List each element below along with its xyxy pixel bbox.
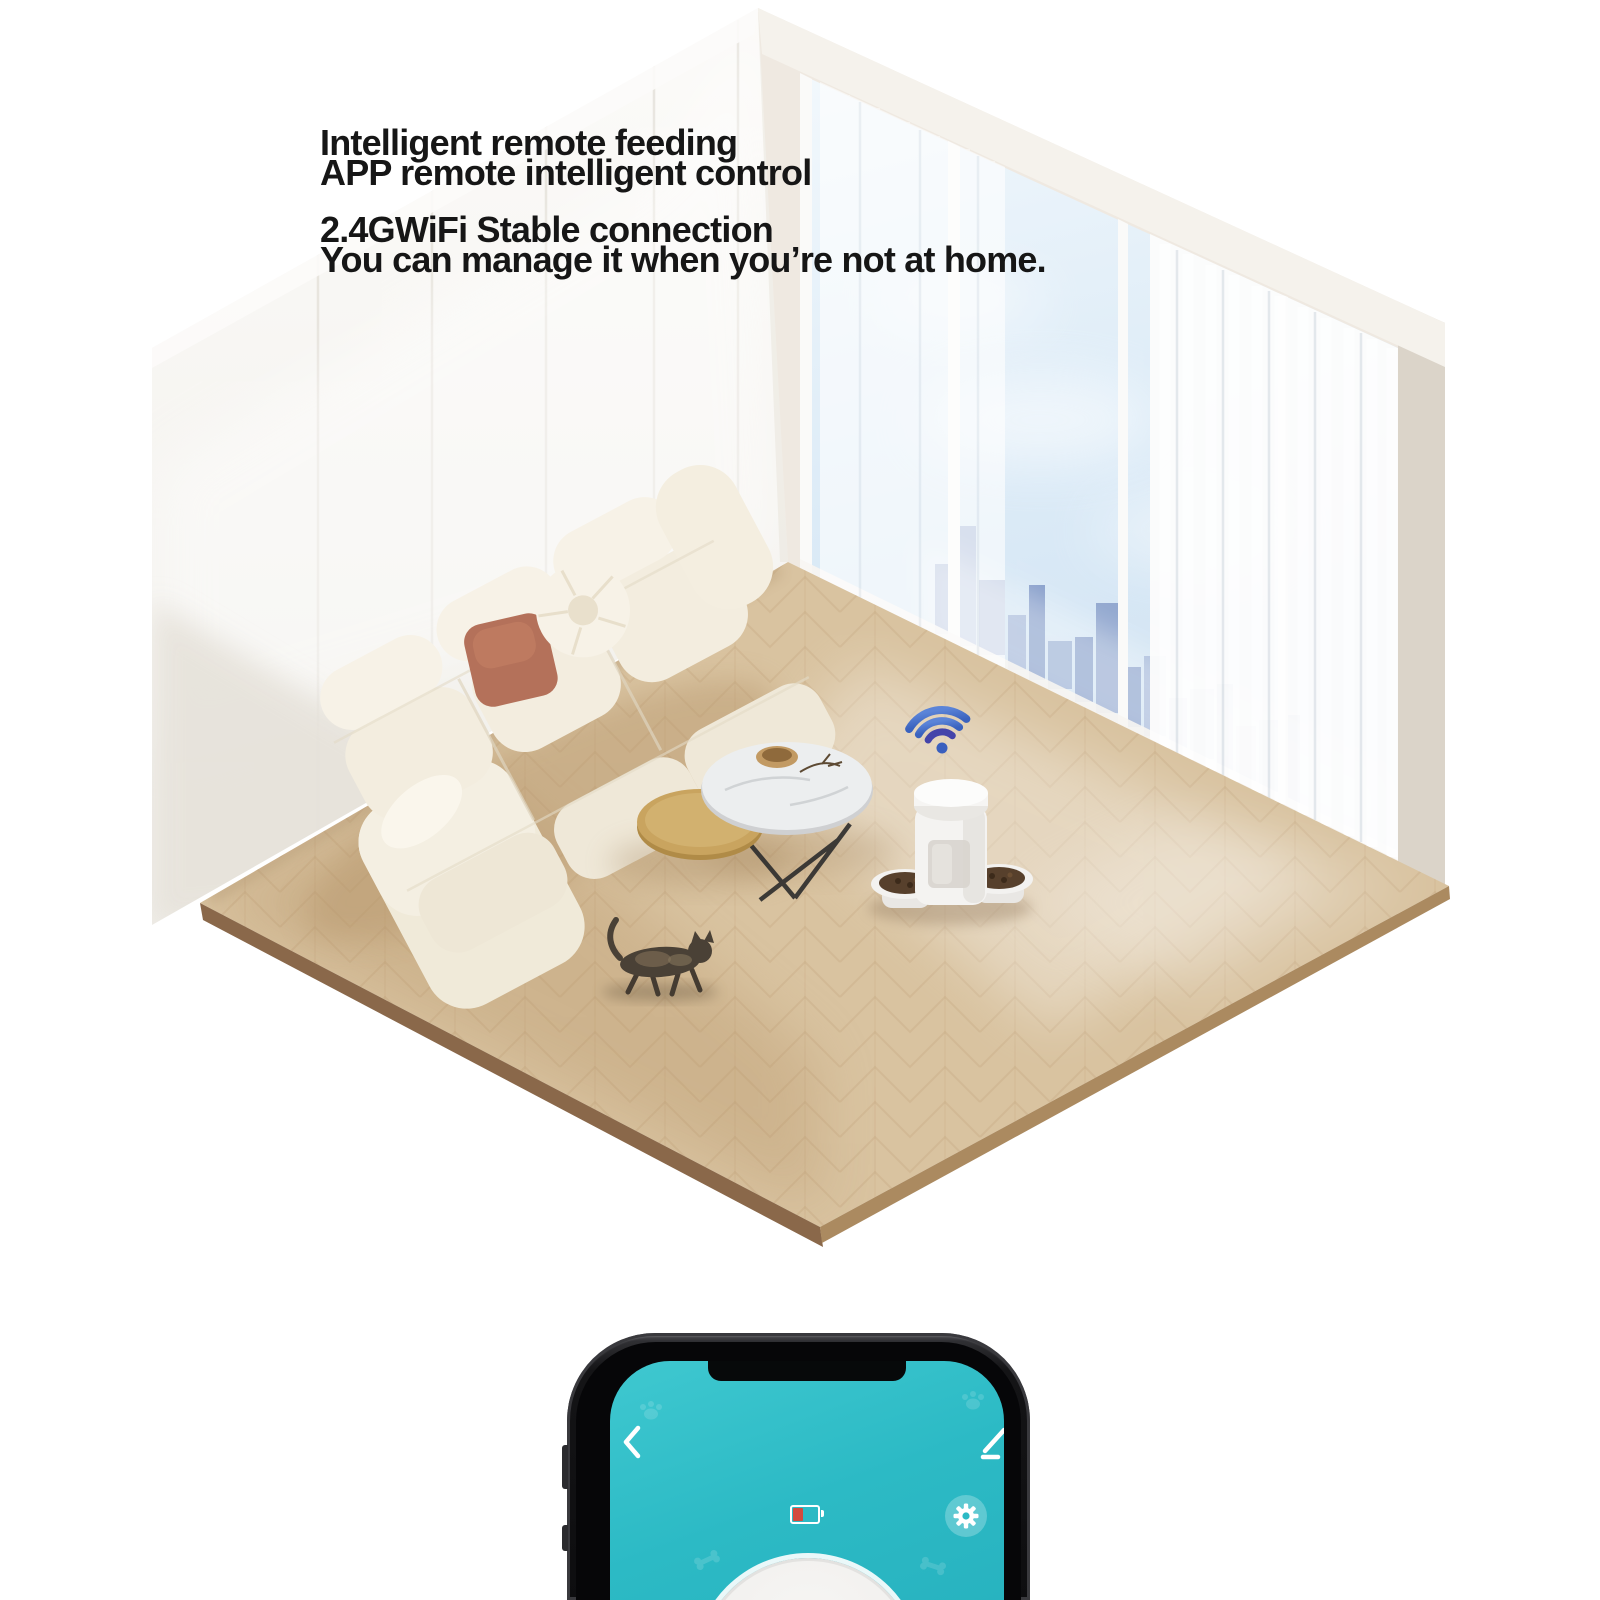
feeder-body [914,779,988,905]
bone-icon [917,1555,950,1578]
headline: Intelligent remote feeding APP remote in… [320,128,1046,275]
wooden-bowl [756,746,798,768]
settings-gear-button[interactable] [953,1503,979,1529]
page: Intelligent remote feeding APP remote in… [0,0,1600,1600]
paw-icon [960,1387,986,1413]
volume-button [562,1525,568,1551]
paw-icon [638,1397,664,1423]
volume-button [562,1445,568,1489]
phone-notch [708,1361,906,1381]
back-button[interactable] [620,1423,644,1461]
edit-pencil-button[interactable] [980,1425,1004,1461]
coffee-table-marble [701,742,873,835]
app-screen [610,1361,1004,1600]
battery-low-icon [790,1505,820,1524]
phone [567,1333,1030,1600]
bone-icon [690,1547,723,1572]
phone-bezel [576,1342,1021,1600]
headline-line-4: You can manage it when you’re not at hom… [320,245,1046,275]
feeder-dial [698,1558,918,1600]
headline-line-2: APP remote intelligent control [320,158,1046,188]
